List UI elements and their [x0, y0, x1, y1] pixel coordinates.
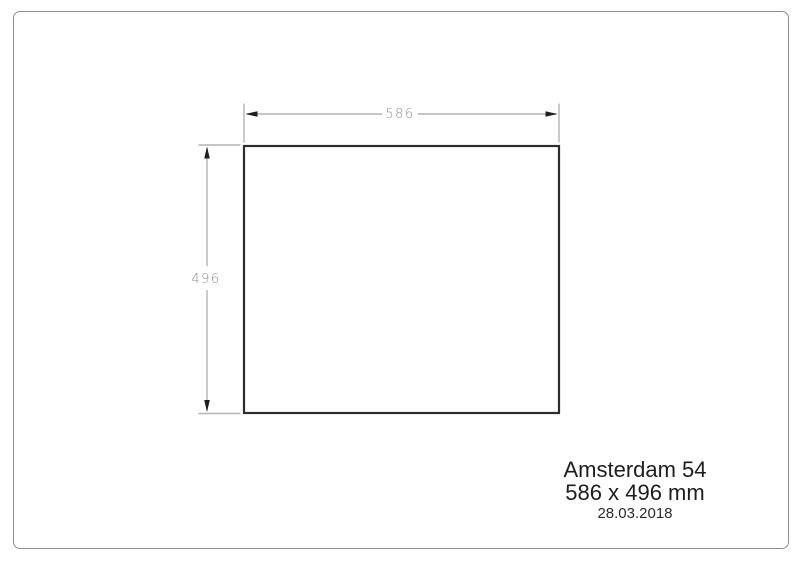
- drawing-date: 28.03.2018: [525, 505, 745, 522]
- height-dimension-label: 496: [191, 272, 220, 287]
- dimension-lines: [199, 104, 560, 414]
- arrow-right-icon: [546, 111, 558, 117]
- cutout-rectangle: [244, 146, 559, 413]
- product-name: Amsterdam 54: [525, 458, 745, 481]
- title-block: Amsterdam 54 586 x 496 mm 28.03.2018: [525, 458, 745, 522]
- size-label: 586 x 496 mm: [525, 481, 745, 504]
- arrow-down-icon: [204, 400, 210, 412]
- arrow-left-icon: [246, 111, 258, 117]
- width-dimension-label: 586: [385, 107, 414, 122]
- arrow-up-icon: [204, 147, 210, 159]
- drawing-sheet: 586 496 Amsterdam 54 586 x 496 mm 28.03.…: [0, 0, 800, 565]
- dimension-arrows: [204, 111, 557, 412]
